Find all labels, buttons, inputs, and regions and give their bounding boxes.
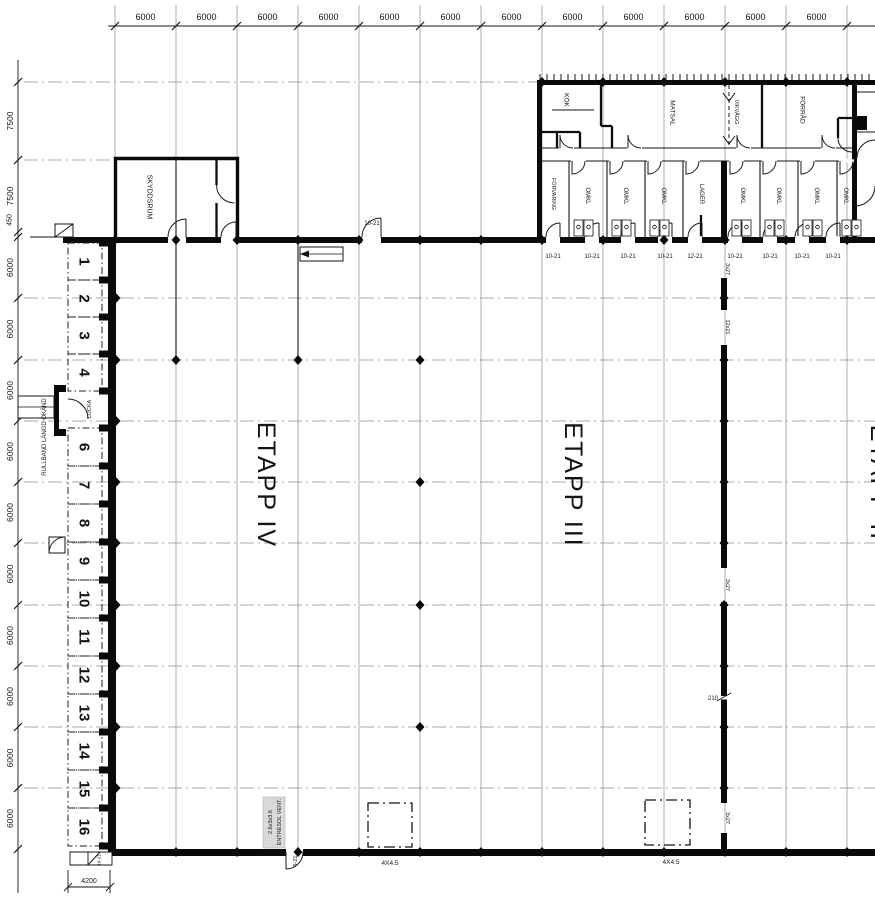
floor-plan-drawing: 6000600060006000600060006000600060006000… [0, 0, 875, 912]
door-tag-1: 10-21 [584, 254, 600, 260]
door-tag-top: 10-21 [364, 221, 380, 227]
door-gap-2 [621, 236, 635, 244]
dim-label-left-5: 6000 [5, 381, 15, 400]
corridor-arc-low-6 [801, 161, 814, 174]
door-tag-4: 12-21 [687, 254, 703, 260]
dim-label-left-9: 6000 [5, 626, 15, 645]
bay-number-7: 9 [76, 557, 93, 565]
door-tag-bottom: 9-21 [293, 855, 299, 866]
bay-number-9: 11 [76, 629, 93, 645]
corridor-gap-low-5 [762, 159, 777, 162]
door-tag-0: 10-21 [545, 254, 561, 260]
wall-tag-12x21: 12x21 [724, 320, 730, 335]
door-tag-5: 10-21 [727, 254, 743, 260]
stall-a-5 [803, 220, 812, 236]
dim-label-4200: 4200 [81, 878, 97, 885]
room-label-lager: LAGER [698, 184, 704, 205]
wall-tag-3x27-c: 3x27 [724, 812, 730, 824]
loading-bays: 1234678910111213141516 [68, 240, 112, 850]
corridor-gap-low-7 [839, 159, 854, 162]
door-gap-5 [728, 236, 742, 244]
dim-label-left-6: 6000 [5, 442, 15, 461]
room-label-kok: KÖK [563, 93, 571, 107]
stall-a-2 [650, 220, 659, 236]
door-tag-3: 10-21 [657, 254, 673, 260]
room-label-forrad: FÖRRÅD [799, 96, 808, 124]
dim-label-top-7: 6000 [562, 12, 582, 22]
door-gap-8 [826, 236, 840, 244]
bay-number-4: 6 [76, 443, 93, 451]
dim-label-top-1: 6000 [196, 12, 216, 22]
stall-b-3 [742, 220, 751, 236]
bay-number-6: 8 [76, 519, 93, 527]
room-label-omkl-3: OMKL [660, 187, 666, 205]
corridor-arc-up-2 [737, 135, 750, 148]
dimension-lines [18, 26, 875, 893]
door-gap-6 [763, 236, 777, 244]
dim-label-left-3: 6000 [5, 258, 15, 277]
walls [54, 80, 875, 856]
corridor-gap-low-4 [729, 159, 744, 162]
door-tag-2: 10-21 [620, 254, 636, 260]
bay-number-8: 10 [76, 591, 93, 608]
dim-label-top-3: 6000 [318, 12, 338, 22]
bay-number-12: 14 [76, 743, 93, 760]
corridor-arc-low-7 [840, 161, 853, 174]
dim-label-left-0: 7500 [5, 111, 15, 130]
door-arcs [49, 138, 875, 869]
corridor-arc-low-4 [730, 161, 743, 174]
stall-a-3 [732, 220, 741, 236]
dim-label-top-0: 6000 [135, 12, 155, 22]
door-tag-8: 10-21 [825, 254, 841, 260]
corridor-gap-low-3 [685, 159, 700, 162]
wall-tag-3x27-a: 3x27 [724, 263, 730, 275]
room-label-omkl-7: OMKL [842, 187, 848, 205]
room-label-vikvagg: VIKVÄGG [733, 100, 740, 125]
bay-number-0: 1 [76, 257, 93, 265]
dim-label-left-2: 450 [7, 214, 14, 226]
room-label-omkl-6: OMKL [813, 187, 819, 205]
note-rullband: RULLBAND LÄNGD OKÄND [41, 398, 48, 476]
zone-label-etapp-ii-partial: ETAPP II [865, 425, 875, 542]
door-arc-8 [826, 223, 840, 237]
stall-b-5 [813, 220, 822, 236]
corridor-gap-low-1 [609, 159, 624, 162]
dim-label-top-11: 6000 [806, 12, 826, 22]
door-gap-0 [546, 236, 560, 244]
bay-number-1: 2 [76, 294, 93, 302]
dim-label-top-8: 6000 [623, 12, 643, 22]
bay-number-5: 7 [76, 481, 93, 489]
dim-label-left-8: 6000 [5, 564, 15, 583]
note-entresol-1: ENTRESOL VENT. [277, 798, 283, 845]
wall-hatches [540, 74, 869, 80]
wall-tag-3x27-b: 3x27 [724, 579, 730, 591]
door-arc-0 [546, 223, 560, 237]
stall-b-2 [660, 220, 669, 236]
grid-vertical [115, 5, 847, 849]
door-tag-corner: 10-21 [97, 854, 102, 866]
room-label-forvaring: FÖRVARING [550, 178, 557, 210]
bay-number-10: 12 [76, 667, 93, 684]
dim-label-top-6: 6000 [501, 12, 521, 22]
zone-label-etapp-iii: ETAPP III [559, 422, 587, 547]
grid-lines [24, 5, 875, 849]
vent-tag-2: 4X4.5 [663, 859, 680, 866]
dim-label-left-7: 6000 [5, 503, 15, 522]
dim-label-left-4: 6000 [5, 319, 15, 338]
stall-b-6 [852, 220, 861, 236]
corridor-arc-low-2 [648, 161, 661, 174]
dim-label-left-10: 6000 [5, 687, 15, 706]
stall-b-0 [584, 220, 593, 236]
room-label-omkl-4: OMKL [739, 187, 745, 205]
corridor-gap-low-0 [571, 159, 586, 162]
stall-b-1 [622, 220, 631, 236]
zone-label-etapp-iv: ETAPP IV [252, 422, 280, 548]
bay-number-13: 15 [76, 781, 93, 798]
wall-tag-210: 210 [708, 696, 719, 702]
dim-label-left-12: 6000 [5, 809, 15, 828]
bay-number-2: 3 [76, 331, 93, 339]
stall-b-4 [775, 220, 784, 236]
stall-a-0 [574, 220, 583, 236]
door-gap-4 [688, 236, 702, 244]
corridor-arc-up-0 [560, 135, 573, 148]
room-label-omkl-2: OMKL [622, 187, 628, 205]
room-label-matsal: MATSAL [669, 100, 676, 126]
stall-a-4 [765, 220, 774, 236]
vent-squares [368, 800, 690, 847]
stall-a-6 [842, 220, 851, 236]
bay-number-11: 13 [76, 705, 93, 722]
door-openings [168, 237, 728, 857]
dim-label-top-10: 6000 [745, 12, 765, 22]
dim-label-top-2: 6000 [257, 12, 277, 22]
door-tag-7: 10-21 [794, 254, 810, 260]
corridor-arc-low-5 [763, 161, 776, 174]
corridor-arc-up-3 [822, 135, 835, 148]
note-lucka: LUCKA [87, 400, 93, 419]
dim-label-top-9: 6000 [684, 12, 704, 22]
door-gap-7 [795, 236, 809, 244]
corridor-gap-low-6 [800, 159, 815, 162]
corner-entry-boxes [70, 852, 112, 865]
stall-a-1 [612, 220, 621, 236]
dim-label-top-5: 6000 [440, 12, 460, 22]
door-gap-1 [585, 236, 599, 244]
toilet-stalls [574, 220, 861, 236]
room-label-skyddsrum: SKYDDSRUM [146, 175, 153, 220]
corridor-arc-low-0 [572, 161, 585, 174]
room-label-omkl-1: OMKL [584, 187, 590, 205]
vent-tag-1: 4X4.5 [382, 860, 399, 867]
note-entresol-2: 2.6x3x3.6 [268, 810, 274, 834]
bay-number-14: 16 [76, 819, 93, 836]
bay-number-3: 4 [76, 368, 93, 377]
door-tag-6: 10-21 [762, 254, 778, 260]
corridor-gap-low-2 [647, 159, 662, 162]
dim-label-top-4: 6000 [379, 12, 399, 22]
room-label-omkl-5: OMKL [775, 187, 781, 205]
floor-plan-page: 6000600060006000600060006000600060006000… [0, 0, 875, 912]
dim-label-left-11: 6000 [5, 748, 15, 767]
dim-label-left-1: 7500 [5, 186, 15, 205]
corridor-arc-up-1 [628, 135, 641, 148]
corridor-arc-low-1 [610, 161, 623, 174]
corridor-arc-low-3 [686, 161, 699, 174]
